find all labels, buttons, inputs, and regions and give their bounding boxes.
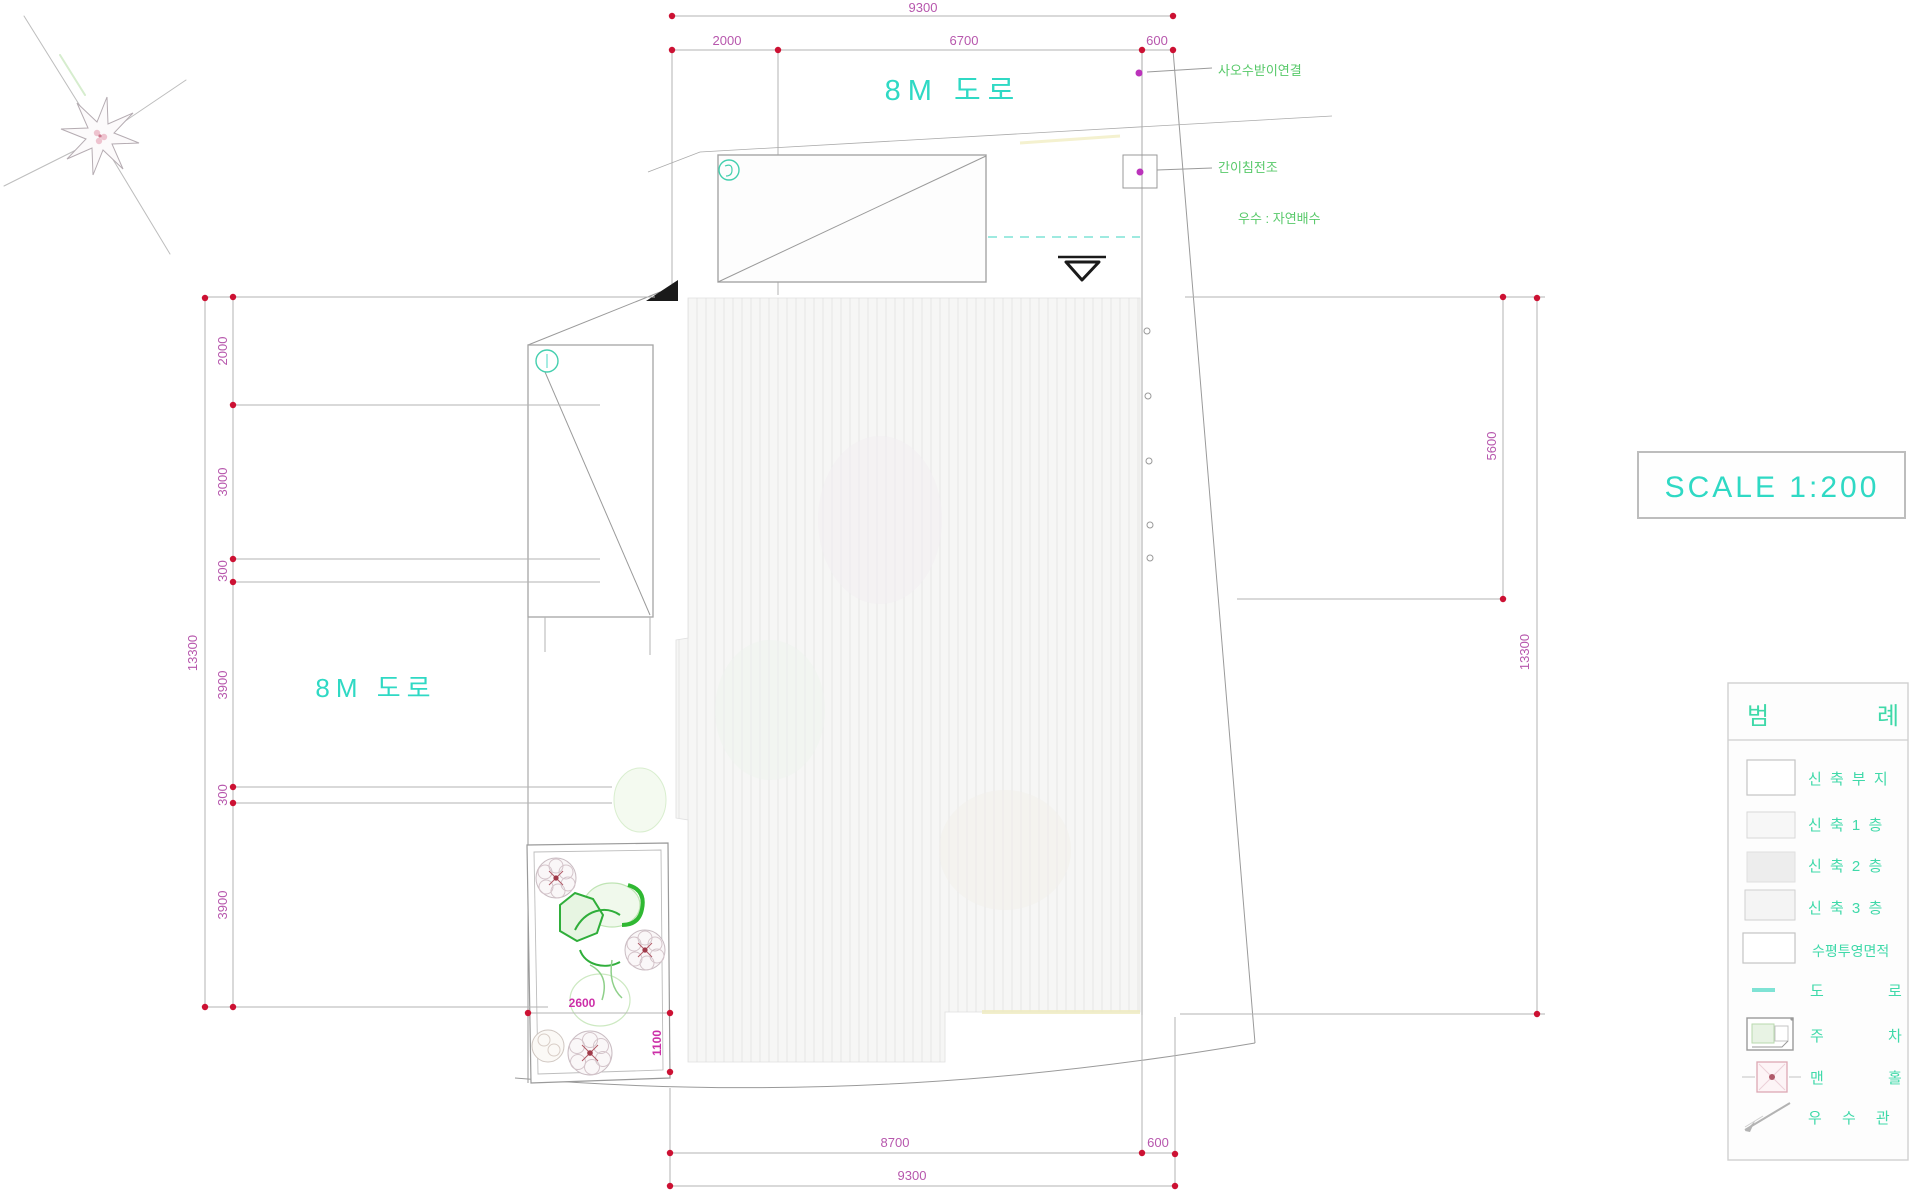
dim-left-3900b: 3900 (215, 891, 230, 920)
legend: 범 례 신 축 부 지 신 축 1 층 신 축 2 층 신 축 3 층 수평투영… (1728, 683, 1913, 1160)
site-plan-drawing: 사오수받이연결 간이침전조 우수 : 자연배수 8M 도로 8M 도로 9300… (0, 0, 1913, 1194)
garden-plot (527, 768, 670, 1083)
dim-top-600: 600 (1146, 33, 1168, 48)
legend-swatch-site (1747, 760, 1795, 795)
road-label-top: 8M 도로 (885, 75, 1022, 107)
dim-chain-top: 9300 2000 6700 600 (669, 0, 1176, 53)
dim-bottom-9300: 9300 (898, 1168, 927, 1183)
legend-label-road: 도 로 (1810, 983, 1913, 1000)
dim-bottom-600: 600 (1147, 1135, 1169, 1150)
legend-label-parking: 주 차 (1810, 1028, 1913, 1045)
dim-top-6700: 6700 (950, 33, 979, 48)
legend-label-storm-pipe: 우 수 관 (1808, 1110, 1898, 1127)
legend-label-floor2: 신 축 2 층 (1808, 858, 1884, 875)
dim-left-3900a: 3900 (215, 671, 230, 700)
scale-box: SCALE 1:200 (1638, 452, 1905, 518)
annex-top-rectangle (718, 155, 986, 282)
utility-node (1123, 70, 1157, 189)
note-settling-tank: 간이침전조 (1218, 160, 1278, 175)
dim-left-300a: 300 (215, 560, 230, 582)
dim-left-3000: 3000 (215, 468, 230, 497)
legend-label-floor1: 신 축 1 층 (1808, 817, 1884, 834)
foliage-faint (614, 768, 666, 832)
dim-left-2000: 2000 (215, 337, 230, 366)
legend-label-site: 신 축 부 지 (1808, 771, 1890, 788)
dim-left-13300: 13300 (185, 635, 200, 671)
scale-label: SCALE 1:200 (1665, 471, 1880, 504)
section-arrow-marker (1066, 262, 1099, 280)
legend-swatch-floor2 (1747, 852, 1795, 882)
dim-left-300b: 300 (215, 784, 230, 806)
legend-swatch-parking (1747, 1017, 1794, 1050)
legend-swatch-floor3 (1745, 890, 1795, 920)
legend-header-right: 례 (1877, 703, 1899, 730)
legend-swatch-projection (1743, 933, 1795, 963)
north-compass-icon (4, 16, 186, 254)
legend-header-left: 범 (1747, 703, 1769, 730)
legend-label-projection: 수평투영면적 (1812, 943, 1889, 959)
dim-garden-1100: 1100 (650, 1030, 664, 1056)
legend-label-floor3: 신 축 3 층 (1808, 900, 1884, 917)
dim-garden-2600: 2600 (569, 996, 596, 1010)
legend-label-manhole: 맨 홀 (1810, 1070, 1913, 1087)
annotations: 사오수받이연결 간이침전조 우수 : 자연배수 (1147, 63, 1321, 226)
annex-left-rectangle (528, 345, 653, 655)
note-rainwater-drain: 우수 : 자연배수 (1238, 211, 1321, 226)
legend-swatch-floor1 (1747, 812, 1795, 838)
dim-right-5600: 5600 (1484, 432, 1499, 461)
tree-symbol (536, 858, 576, 898)
note-sewer-connection: 사오수받이연결 (1218, 63, 1302, 78)
site-plan-canvas: 사오수받이연결 간이침전조 우수 : 자연배수 8M 도로 8M 도로 9300… (0, 0, 1913, 1194)
corner-cut-marker (646, 280, 678, 301)
dim-top-9300: 9300 (909, 0, 938, 15)
dim-top-2000: 2000 (713, 33, 742, 48)
dim-bottom-8700: 8700 (881, 1135, 910, 1150)
tree-symbol (625, 930, 665, 970)
dim-right-13300: 13300 (1517, 634, 1532, 670)
dim-chain-right: 5600 13300 (1180, 294, 1545, 1017)
road-label-left: 8M 도로 (315, 673, 436, 703)
